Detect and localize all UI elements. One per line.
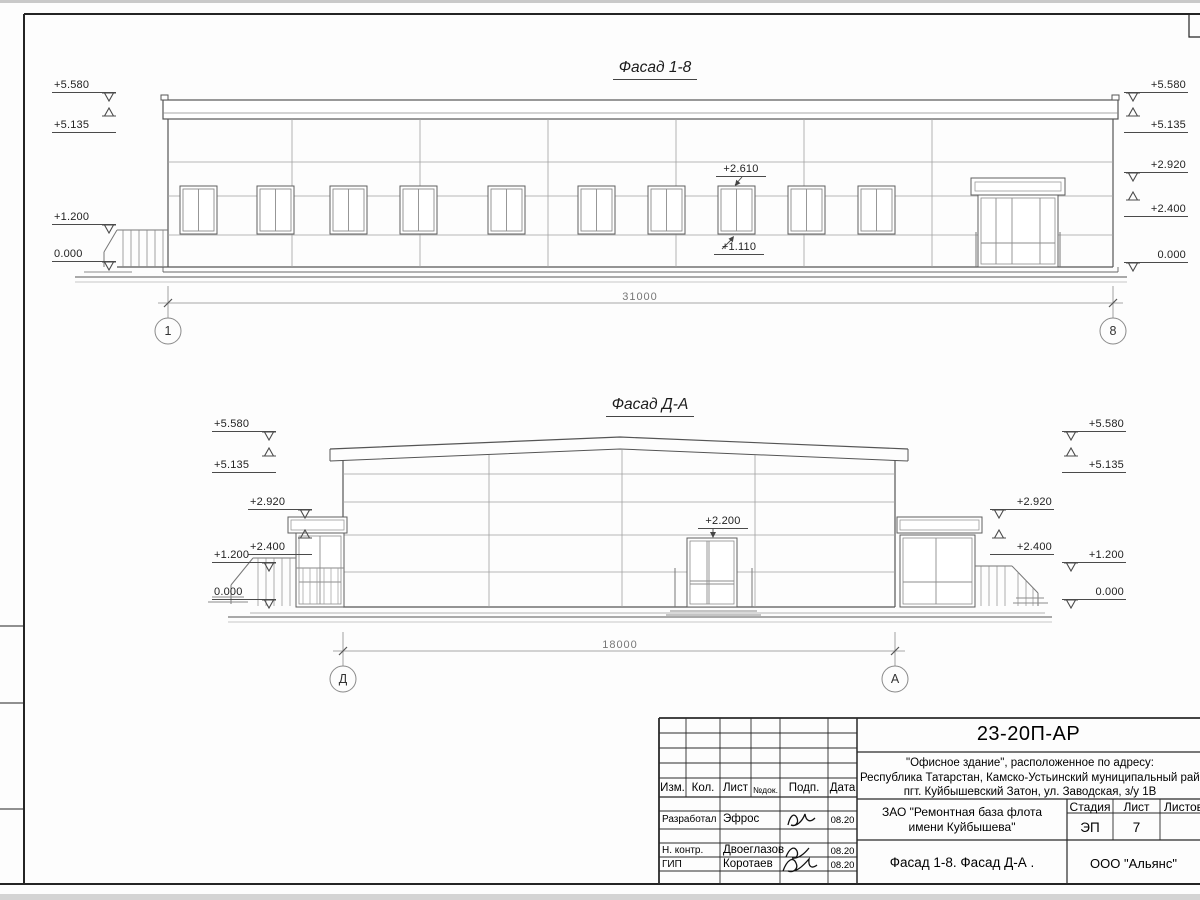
elevation-value: +5.580 [1149, 79, 1188, 91]
elevation-arrow-icon [1125, 191, 1141, 201]
f1-mark-left-5135: +5.135 [52, 118, 116, 133]
elevation-arrow-icon [991, 509, 1007, 519]
sig-name-developer: Эфрос [723, 813, 779, 825]
sig-role-gip: ГИП [662, 859, 719, 870]
axis-bubble-a: А [882, 672, 908, 686]
sig-role-ncontrol: Н. контр. [662, 845, 719, 856]
client-name-line2: имени Куйбышева" [857, 820, 1067, 835]
elevation-value: 0.000 [52, 248, 85, 260]
elevation-value: +2.400 [1149, 203, 1188, 215]
stage-value: ЭП [1067, 820, 1113, 835]
f1-mark-left-5580: +5.580 [52, 78, 116, 93]
elevation-value: +5.135 [1087, 459, 1126, 471]
f2-mark-right-0000: 0.000 [1062, 585, 1126, 600]
elevation-arrow-icon [991, 529, 1007, 539]
elevation-value: +5.580 [52, 79, 91, 91]
f1-mark-window-bottom: +1.110 [714, 240, 764, 255]
sheet-value: 7 [1113, 820, 1160, 835]
client-name: ЗАО "Ремонтная база флота имени Куйбышев… [857, 805, 1067, 835]
elevation-value: +2.920 [248, 496, 287, 508]
f1-mark-right-2400: +2.400 [1124, 202, 1188, 217]
elevation-arrow-icon [101, 92, 117, 102]
elevation-value: +2.920 [1149, 159, 1188, 171]
elevation-value: +5.580 [212, 418, 251, 430]
axis-bubble-8: 8 [1100, 324, 1126, 338]
sig-role-developer: Разработал [662, 814, 719, 825]
f2-mark-door: +2.200 [698, 514, 748, 529]
elevation-value: +1.200 [52, 211, 91, 223]
elevation-arrow-icon [101, 261, 117, 271]
elevation-arrow-icon [1125, 262, 1141, 272]
elevation-value: 0.000 [1155, 249, 1188, 261]
elevation-value: +1.200 [1087, 549, 1126, 561]
elevation-arrow-icon [261, 599, 277, 609]
elevation-arrow-icon [1125, 92, 1141, 102]
elevation-value: 0.000 [1093, 586, 1126, 598]
f1-mark-right-5580: +5.580 [1124, 78, 1188, 93]
elevation-value: +1.110 [720, 241, 758, 253]
elevation-value: +1.200 [212, 549, 251, 561]
sheet-header: Лист [1113, 800, 1160, 814]
object-address-line1: "Офисное здание", расположенное по адрес… [860, 756, 1200, 771]
company-name: ООО "Альянс" [1067, 856, 1200, 871]
elevation-value: +5.135 [212, 459, 251, 471]
f1-mark-right-2920: +2.920 [1124, 158, 1188, 173]
elevation-arrow-icon [1063, 431, 1079, 441]
f2-mark-right-1200: +1.200 [1062, 548, 1126, 563]
f2-mark-left-5135: +5.135 [212, 458, 276, 473]
f2-mark-left-1200: +1.200 [212, 548, 276, 563]
axis-bubble-1: 1 [155, 324, 181, 338]
elevation-arrow-icon [1125, 172, 1141, 182]
col-header-data: Дата [828, 782, 857, 794]
elevation-arrow-icon [1063, 447, 1079, 457]
elevation-arrow-icon [297, 509, 313, 519]
object-address-line2: Республика Татарстан, Камско-Устьинский … [860, 771, 1200, 786]
stage-header: Стадия [1067, 800, 1113, 814]
sig-name-gip: Коротаев [723, 858, 779, 870]
f1-mark-left-1200: +1.200 [52, 210, 116, 225]
facade-1-8-title-text: Фасад 1-8 [613, 59, 698, 80]
elevation-value: +2.400 [1015, 541, 1054, 553]
object-address-line3: пгт. Куйбышевский Затон, ул. Заводская, … [860, 785, 1200, 800]
f2-mark-left-0000: 0.000 [212, 585, 276, 600]
axis-bubble-d: Д [330, 672, 356, 686]
elevation-value: +2.920 [1015, 496, 1054, 508]
drawing-frame [0, 14, 1200, 884]
f1-mark-left-0000: 0.000 [52, 247, 116, 262]
sig-name-ncontrol: Двоеглазов [723, 844, 779, 856]
f2-mark-left-5580: +5.580 [212, 417, 276, 432]
f2-mark-right-2920: +2.920 [990, 495, 1054, 510]
elevation-value: +5.580 [1087, 418, 1126, 430]
elevation-arrow-icon [1063, 599, 1079, 609]
drawing-sheet: Фасад 1-8 +5.580 +5.135 +1.200 0.000 +5.… [0, 0, 1200, 900]
f2-dimension-label: 18000 [570, 639, 670, 651]
elevation-arrow-icon [101, 224, 117, 234]
f1-dimension-label: 31000 [590, 291, 690, 303]
f2-mark-right-5135: +5.135 [1062, 458, 1126, 473]
elevation-value: +2.200 [703, 515, 742, 527]
sig-date-ncontrol: 08.20 [828, 846, 857, 857]
elevation-value: +5.135 [1149, 119, 1188, 131]
elevation-arrow-icon [297, 529, 313, 539]
elevation-arrow-icon [261, 562, 277, 572]
doc-number: 23-20П-АР [857, 723, 1200, 746]
col-header-kol: Кол. [686, 782, 720, 794]
f2-mark-left-2920: +2.920 [248, 495, 312, 510]
f1-mark-right-0000: 0.000 [1124, 248, 1188, 263]
sheets-header: Листов [1164, 800, 1200, 814]
sheet-title: Фасад 1-8. Фасад Д-А . [857, 855, 1067, 870]
elevation-arrow-icon [101, 107, 117, 117]
f1-mark-window-top: +2.610 [716, 162, 766, 177]
client-name-line1: ЗАО "Ремонтная база флота [857, 805, 1067, 820]
elevation-arrow-icon [1125, 107, 1141, 117]
facade-d-a-title: Фасад Д-А [570, 396, 730, 417]
col-header-izm: Изм. [659, 782, 686, 794]
paper-edge-top [0, 0, 1200, 3]
elevation-arrow-icon [1063, 562, 1079, 572]
facade-d-a-title-text: Фасад Д-А [606, 396, 695, 417]
sig-date-developer: 08.20 [828, 815, 857, 826]
facade-1-8-title: Фасад 1-8 [575, 59, 735, 80]
facade-d-a-linework [208, 437, 1052, 692]
elevation-arrow-icon [261, 447, 277, 457]
elevation-value: +5.135 [52, 119, 91, 131]
elevation-arrow-icon [261, 431, 277, 441]
f1-mark-right-5135: +5.135 [1124, 118, 1188, 133]
object-address: "Офисное здание", расположенное по адрес… [860, 756, 1200, 800]
f2-mark-right-2400: +2.400 [990, 540, 1054, 555]
elevation-value: +2.610 [721, 163, 760, 175]
elevation-value: 0.000 [212, 586, 245, 598]
col-header-ndok: №док. [751, 785, 780, 795]
sig-date-gip: 08.20 [828, 860, 857, 871]
col-header-podp: Подп. [780, 782, 828, 794]
f2-mark-right-5580: +5.580 [1062, 417, 1126, 432]
col-header-list: Лист [720, 782, 751, 794]
paper-edge-bottom [0, 894, 1200, 900]
facade-1-8-linework [75, 95, 1127, 344]
